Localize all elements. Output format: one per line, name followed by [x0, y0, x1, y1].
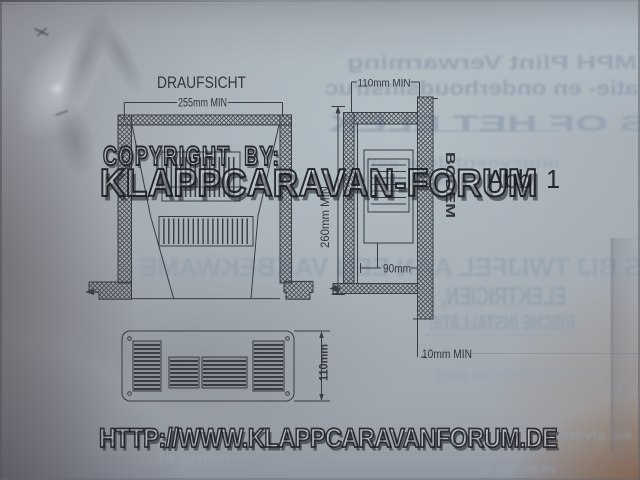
svg-text:110mm: 110mm — [317, 344, 331, 381]
svg-text:90mm: 90mm — [383, 262, 411, 276]
svg-text:10mm MIN: 10mm MIN — [422, 347, 472, 361]
svg-text:255mm MIN: 255mm MIN — [178, 96, 227, 110]
svg-text:110mm MIN: 110mm MIN — [358, 78, 411, 90]
svg-text:DRAUFSICHT: DRAUFSICHT — [157, 74, 246, 92]
